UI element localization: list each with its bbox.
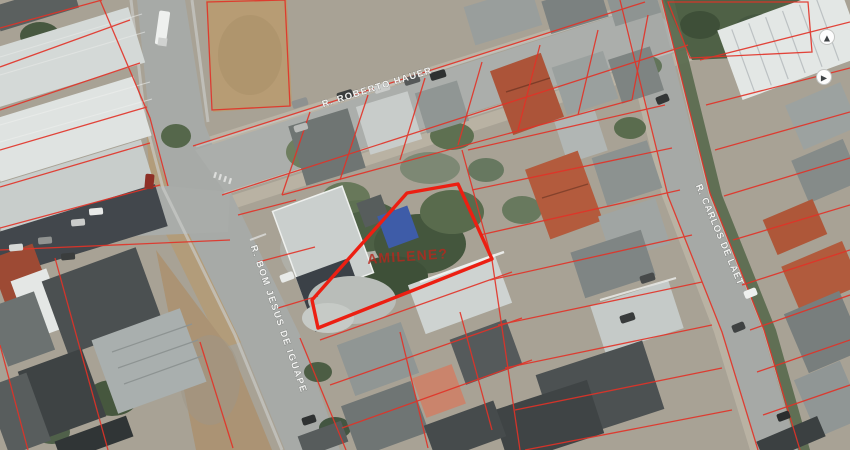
map-marker[interactable]: ▲ (820, 30, 835, 45)
map-marker-icon: ▲ (824, 34, 831, 43)
map-marker[interactable]: ▶ (817, 70, 832, 85)
aerial-map: R. ROBERTO HAUER R. BOM JESUS DE IGUAPE … (0, 0, 850, 450)
aerial-map-viewport: R. ROBERTO HAUER R. BOM JESUS DE IGUAPE … (0, 0, 850, 450)
map-marker-icon: ▶ (821, 74, 828, 83)
